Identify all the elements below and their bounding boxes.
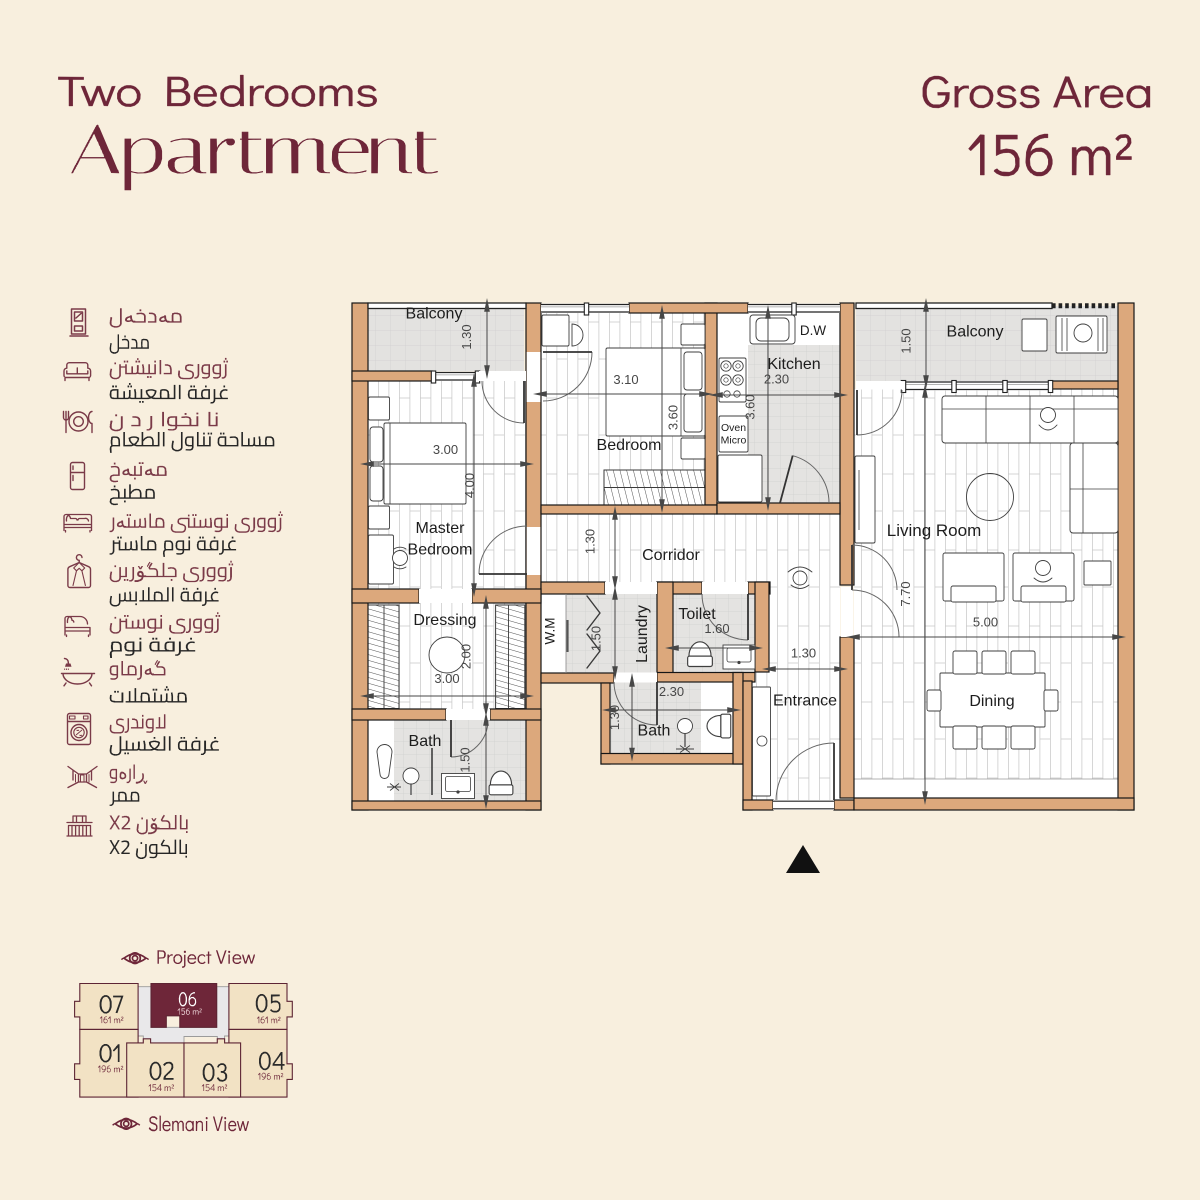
svg-text:Toilet: Toilet: [678, 606, 716, 623]
svg-text:1.50: 1.50: [458, 747, 473, 772]
svg-text:1.30: 1.30: [583, 529, 598, 554]
svg-text:W.M: W.M: [543, 618, 558, 645]
svg-text:7.70: 7.70: [898, 581, 913, 606]
svg-text:3.00: 3.00: [433, 442, 458, 457]
svg-text:1.30: 1.30: [791, 646, 816, 661]
svg-text:Master: Master: [416, 520, 466, 537]
svg-text:Dining: Dining: [969, 693, 1014, 710]
svg-text:3.60: 3.60: [666, 405, 681, 430]
svg-text:1.50: 1.50: [899, 328, 914, 353]
svg-text:Balcony: Balcony: [947, 324, 1004, 341]
svg-text:2.30: 2.30: [659, 684, 684, 699]
svg-text:Bedroom: Bedroom: [408, 542, 473, 559]
svg-text:3.60: 3.60: [743, 394, 758, 419]
svg-text:Balcony: Balcony: [406, 306, 463, 323]
svg-text:1.60: 1.60: [704, 621, 729, 636]
svg-text:Bedroom: Bedroom: [597, 437, 662, 454]
svg-text:3.10: 3.10: [613, 372, 638, 387]
svg-text:Corridor: Corridor: [642, 547, 700, 564]
svg-text:3.00: 3.00: [434, 671, 459, 686]
svg-text:D.W: D.W: [800, 323, 827, 338]
svg-text:5.00: 5.00: [973, 615, 998, 630]
svg-text:Dressing: Dressing: [413, 612, 476, 629]
svg-text:Bath: Bath: [638, 723, 671, 740]
svg-text:Living Room: Living Room: [887, 521, 982, 540]
svg-text:4.00: 4.00: [462, 473, 477, 498]
svg-text:Entrance: Entrance: [773, 693, 837, 710]
svg-text:Laundry: Laundry: [634, 605, 651, 663]
svg-text:1.30: 1.30: [607, 705, 622, 730]
svg-text:2.00: 2.00: [459, 644, 474, 669]
svg-text:Kitchen: Kitchen: [767, 356, 820, 373]
svg-text:Oven: Oven: [721, 422, 746, 434]
svg-text:Micro: Micro: [721, 435, 747, 447]
svg-text:1.30: 1.30: [459, 324, 474, 349]
svg-text:Bath: Bath: [409, 733, 442, 750]
svg-text:1.50: 1.50: [589, 626, 604, 651]
